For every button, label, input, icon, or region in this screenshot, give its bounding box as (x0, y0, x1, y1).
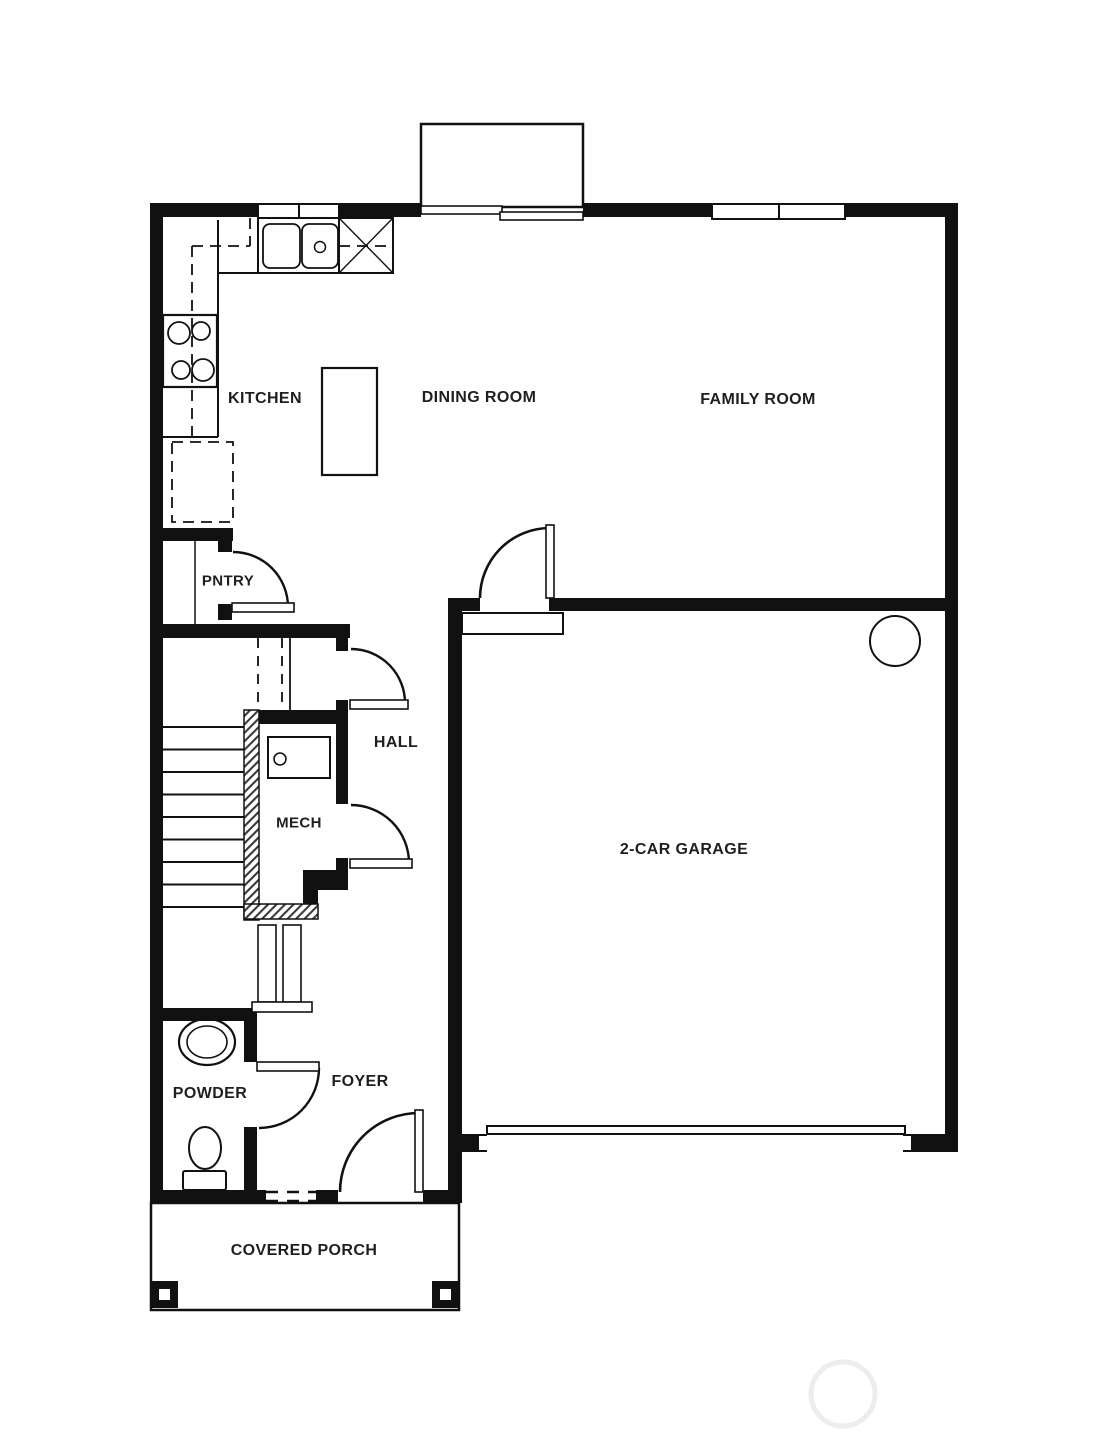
stair-landing-lines (258, 638, 290, 710)
garage-door-jamb-right (903, 1136, 911, 1150)
wall-top-3 (583, 203, 712, 217)
wall-top-1 (150, 203, 258, 217)
mech-door-stub (336, 858, 348, 872)
stairs (163, 727, 244, 907)
room-label-pantry: PNTRY (202, 573, 254, 590)
garage-north-wall (549, 598, 945, 611)
overhead-garage-door (487, 1126, 905, 1134)
room-label-mech: MECH (276, 815, 322, 832)
toilet-icon (183, 1127, 226, 1190)
water-heater-icon (268, 737, 330, 778)
room-label-kitchen: KITCHEN (228, 390, 302, 408)
powder-east-wall-upper (244, 1008, 257, 1062)
floor-plan-drawing (0, 0, 1113, 1439)
kitchen-fixtures (163, 218, 393, 522)
powder-fixtures (179, 1019, 235, 1190)
room-label-hall: HALL (374, 734, 418, 752)
exterior-walls (150, 203, 958, 1203)
pantry-door-stub-bottom (218, 604, 232, 620)
room-label-garage: 2-CAR GARAGE (620, 841, 748, 859)
landing-door (350, 649, 408, 709)
wall-top-4 (845, 203, 958, 217)
refrigerator-dashed (172, 442, 233, 522)
mech-step-wall-a (303, 870, 348, 890)
wall-left (150, 203, 163, 1203)
range-cooktop-icon (163, 315, 217, 387)
garage-west-wall (448, 598, 462, 1203)
powder-east-wall-lower (244, 1127, 257, 1191)
garage-door-jamb-left (479, 1136, 487, 1150)
patio-bumpout (421, 124, 583, 220)
porch-posts (151, 1281, 459, 1308)
mech-door (350, 805, 412, 868)
room-label-dining-room: DINING ROOM (422, 389, 537, 407)
powder-door (257, 1062, 319, 1128)
powder-sink-icon (179, 1019, 235, 1065)
room-label-foyer: FOYER (331, 1073, 388, 1091)
garage-entry-door (480, 525, 554, 598)
wall-top-2 (339, 203, 421, 217)
room-label-powder: POWDER (173, 1085, 247, 1103)
landing-door-stub (336, 638, 348, 651)
wall-bottom-2 (316, 1190, 338, 1203)
kitchen-island (322, 368, 377, 475)
watermark-logo (811, 1362, 875, 1426)
floor-plan: KITCHEN DINING ROOM FAMILY ROOM PNTRY HA… (0, 0, 1113, 1439)
wall-bottom-1 (150, 1190, 266, 1203)
stair-railing (252, 925, 312, 1012)
front-door (340, 1110, 423, 1192)
garage-column (870, 616, 920, 666)
wall-right (945, 203, 958, 1152)
mech-east-wall (336, 700, 348, 804)
entry-dashed-opening (266, 1192, 316, 1201)
stair-landing-north-wall (150, 624, 350, 638)
garage-step (462, 613, 563, 634)
room-label-covered-porch: COVERED PORCH (231, 1242, 378, 1260)
room-label-family-room: FAMILY ROOM (700, 391, 816, 409)
pantry-door-stub-top (218, 538, 232, 552)
double-sink-icon (263, 224, 338, 268)
garage-north-wall-west (448, 598, 480, 611)
